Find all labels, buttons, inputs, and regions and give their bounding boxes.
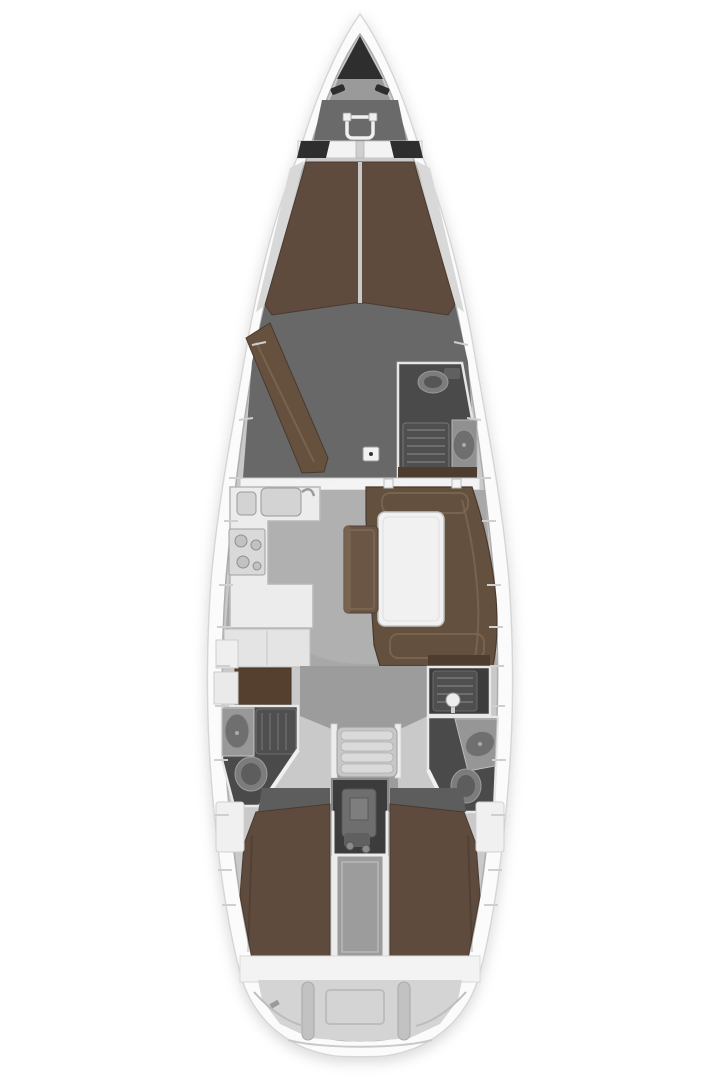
basin-drain	[462, 443, 466, 447]
aft-berth-starboard	[390, 804, 480, 958]
yacht-floorplan-canvas	[0, 0, 720, 1080]
forward-head	[398, 363, 477, 479]
engine-pulley-a	[346, 842, 354, 850]
bulkhead-corner-port	[297, 141, 330, 158]
engine-head	[350, 798, 368, 820]
galley-locker-brown	[235, 668, 291, 705]
aft-locker-starboard	[476, 802, 504, 852]
step-rail-left	[331, 724, 337, 778]
bulkhead-post-a	[384, 479, 393, 488]
floor-latch-dot	[369, 452, 373, 456]
basin-drain	[235, 731, 239, 735]
transom-fin-starboard	[398, 982, 410, 1040]
transom-fin-port	[302, 982, 314, 1040]
toilet-seat	[424, 376, 442, 388]
bulkhead-center-notch	[356, 141, 364, 158]
saloon-table	[378, 512, 444, 626]
toilet	[235, 757, 267, 791]
side-locker-b	[214, 672, 238, 704]
bulkhead-corner-starboard	[390, 141, 423, 158]
windlass-foot-right	[369, 113, 377, 121]
bench-edge-light	[344, 526, 351, 613]
stern	[240, 956, 480, 1047]
aft-berth-port	[240, 804, 330, 958]
bulkhead-post-b	[452, 479, 461, 488]
aft-corridor	[336, 855, 384, 959]
aft-locker-port	[216, 802, 244, 852]
basin-drain	[478, 742, 482, 746]
bow-foredeck	[297, 36, 423, 158]
sink-large	[261, 488, 301, 516]
windlass-foot-left	[343, 113, 351, 121]
v-berth-split-line	[358, 162, 362, 303]
side-locker-a	[216, 640, 238, 668]
sink-small	[237, 492, 256, 515]
shower-head	[446, 693, 460, 707]
engine-pulley-b	[362, 845, 370, 853]
stern-bulkhead	[240, 956, 480, 982]
toilet-seat	[241, 763, 261, 785]
head-sill	[398, 467, 477, 479]
forward-cabin	[243, 161, 477, 479]
yacht-floorplan	[0, 0, 720, 1080]
